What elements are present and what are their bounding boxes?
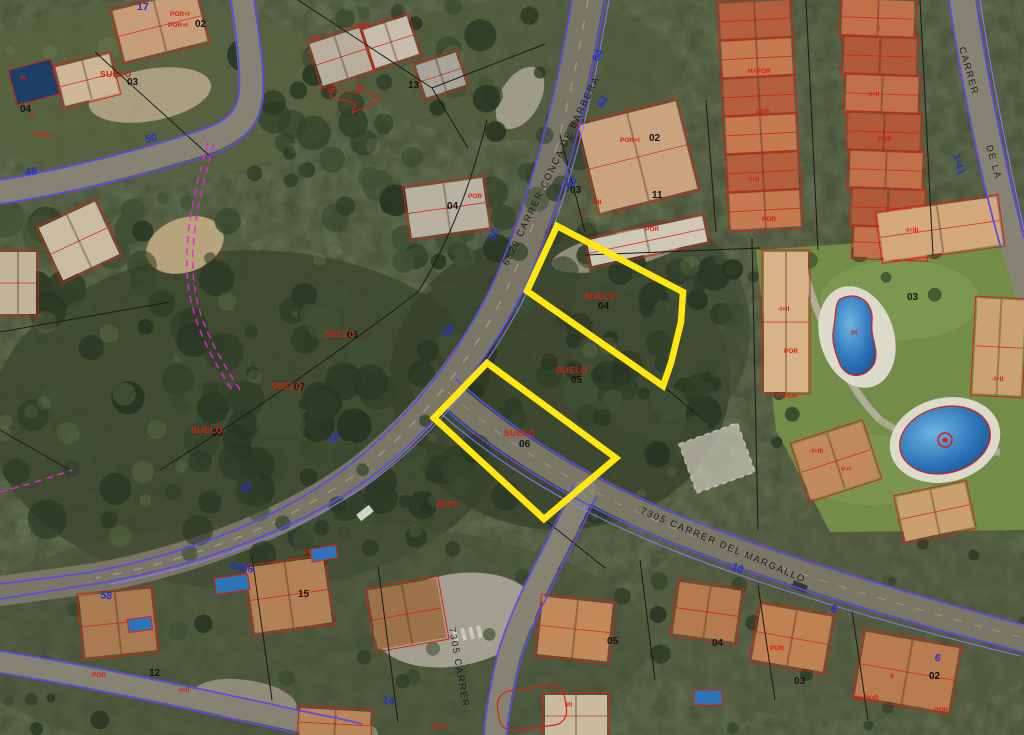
construction-code-label: I <box>964 707 966 714</box>
house-number-label: 58 <box>100 589 113 603</box>
map-viewport[interactable]: 6820 CARRER CONCA DE BARBERA7305 CARRER … <box>0 0 1024 735</box>
construction-code-label: PI <box>851 330 857 337</box>
construction-code-label: V+I <box>841 466 851 473</box>
house-number-label: 14 <box>381 694 395 708</box>
construction-code-label: H+POR <box>856 695 879 702</box>
parcel-number-label: 03 <box>570 185 582 196</box>
construction-code-label: -I+II <box>992 376 1004 383</box>
construction-code-label: -I+III <box>810 448 823 455</box>
parcel-red-label: SUELO <box>271 381 303 391</box>
construction-code-label: POR <box>770 645 784 652</box>
parcel-number-label: 12 <box>149 668 161 679</box>
construction-code-label: PI <box>20 75 26 82</box>
house-number-label: 17 <box>137 1 149 13</box>
parcel-number-label: 03 <box>794 676 806 687</box>
construction-code-label: -I+II <box>748 176 760 183</box>
construction-code-label: PI <box>566 702 572 709</box>
parcel-red-label: SUELO <box>100 69 132 79</box>
construction-code-label: II <box>890 673 894 680</box>
construction-code-label: POR <box>762 216 776 223</box>
construction-code-label: A <box>580 212 585 219</box>
construction-code-label: POR <box>756 109 770 116</box>
parcel-number-label: 02 <box>649 133 661 144</box>
construction-code-label: POR <box>92 672 106 679</box>
construction-code-label: POR+I <box>170 11 190 18</box>
construction-code-label: PI <box>304 549 310 556</box>
construction-code-label: -I+II <box>778 306 790 313</box>
parcel-number-label: 02 <box>929 671 941 682</box>
parcel-number-label: 04 <box>712 638 724 649</box>
parcel-red-label: SUELO <box>191 425 223 435</box>
construction-code-label: -I+II <box>178 687 190 694</box>
parcel-red-label: SUELO <box>504 428 536 438</box>
parcel-number-label: 05 <box>607 636 619 647</box>
construction-code-label: II <box>30 113 34 120</box>
parcel-red-label: SUELO <box>584 291 616 301</box>
construction-code-label: -I+II <box>868 91 880 98</box>
pool <box>127 616 153 632</box>
construction-code-label: POR <box>878 136 892 143</box>
construction-code-label: -I+III <box>905 227 918 234</box>
construction-code-label: POR+I <box>168 22 188 29</box>
construction-code-label: I+II <box>310 35 319 42</box>
construction-code-label: POR+I <box>34 132 54 139</box>
construction-code-label: PI <box>328 88 334 95</box>
house-number-label: 48 <box>24 165 38 179</box>
construction-code-label: POR <box>468 193 482 200</box>
parcel-number-label: 06 <box>519 439 531 450</box>
pool <box>694 690 722 705</box>
construction-code-label: I <box>878 25 880 32</box>
parcel-number-label: 04 <box>447 201 459 212</box>
construction-code-label: POR <box>934 707 948 714</box>
construction-code-label: POR <box>432 724 446 731</box>
parcel-number-label: 04 <box>598 301 610 312</box>
parcel-red-label: SUELO <box>324 329 356 339</box>
construction-code-label: POR <box>784 348 798 355</box>
parcel-red-label: 5070 <box>437 499 458 509</box>
parcel-number-label: 11 <box>652 190 663 201</box>
parcel-number-label: 13 <box>408 80 420 91</box>
parcel-number-label: 02 <box>195 19 207 30</box>
construction-code-label: +III <box>592 199 601 206</box>
construction-code-label: H+POR <box>748 68 771 75</box>
construction-code-label: -I+POR <box>776 393 798 400</box>
parcel-number-label: 03 <box>907 292 919 303</box>
parcel-number-label: 05 <box>571 375 583 386</box>
construction-code-label: POR <box>356 23 370 30</box>
construction-code-label: POR <box>645 226 659 233</box>
construction-code-label: POR+I <box>620 137 640 144</box>
parcel-number-label: 15 <box>298 589 310 600</box>
cadastral-map[interactable]: 6820 CARRER CONCA DE BARBERA7305 CARRER … <box>0 0 1024 735</box>
parcel-red-label: SUELO <box>556 365 588 375</box>
